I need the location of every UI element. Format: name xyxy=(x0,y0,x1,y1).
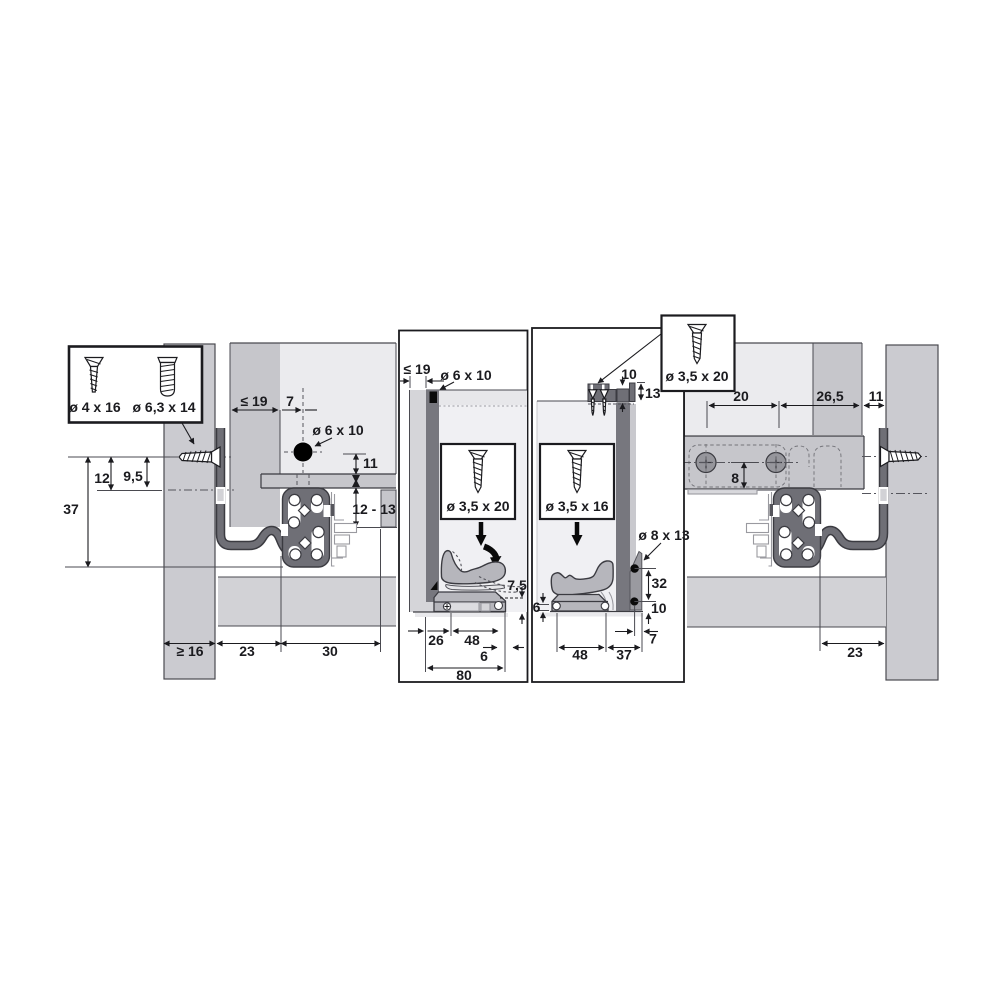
svg-text:23: 23 xyxy=(847,644,863,660)
svg-text:ø 6 x 10: ø 6 x 10 xyxy=(312,422,364,438)
svg-text:ø 6,3 x 14: ø 6,3 x 14 xyxy=(132,399,195,415)
svg-text:23: 23 xyxy=(239,643,255,659)
svg-text:≥ 16: ≥ 16 xyxy=(176,643,203,659)
svg-text:ø 3,5 x 20: ø 3,5 x 20 xyxy=(665,368,728,384)
svg-text:30: 30 xyxy=(322,643,338,659)
svg-text:ø 3,5 x 16: ø 3,5 x 16 xyxy=(545,498,608,514)
svg-text:11: 11 xyxy=(869,388,884,404)
svg-text:12 - 13: 12 - 13 xyxy=(352,501,396,517)
svg-text:48: 48 xyxy=(572,647,588,663)
svg-text:9,5: 9,5 xyxy=(123,468,143,484)
svg-text:6: 6 xyxy=(480,648,488,664)
svg-text:7: 7 xyxy=(286,393,294,409)
svg-text:26,5: 26,5 xyxy=(816,388,843,404)
svg-text:10: 10 xyxy=(651,600,667,616)
svg-text:ø 6 x 10: ø 6 x 10 xyxy=(440,367,492,383)
svg-text:37: 37 xyxy=(63,501,79,517)
svg-text:80: 80 xyxy=(456,667,472,683)
svg-text:26: 26 xyxy=(428,632,444,648)
svg-text:6: 6 xyxy=(533,599,541,615)
svg-text:13: 13 xyxy=(645,385,661,401)
svg-text:ø 3,5 x 20: ø 3,5 x 20 xyxy=(446,498,509,514)
svg-text:ø 8 x 13: ø 8 x 13 xyxy=(638,527,690,543)
svg-text:48: 48 xyxy=(464,632,480,648)
svg-text:12: 12 xyxy=(94,470,110,486)
svg-text:32: 32 xyxy=(652,575,668,591)
svg-text:7: 7 xyxy=(649,631,657,647)
svg-text:ø 4 x 16: ø 4 x 16 xyxy=(69,399,121,415)
svg-text:≤ 19: ≤ 19 xyxy=(403,361,430,377)
svg-text:8: 8 xyxy=(731,470,739,486)
svg-text:37: 37 xyxy=(616,647,632,663)
svg-text:7,5: 7,5 xyxy=(507,577,527,593)
svg-text:11: 11 xyxy=(363,455,378,471)
svg-text:≤ 19: ≤ 19 xyxy=(240,393,267,409)
